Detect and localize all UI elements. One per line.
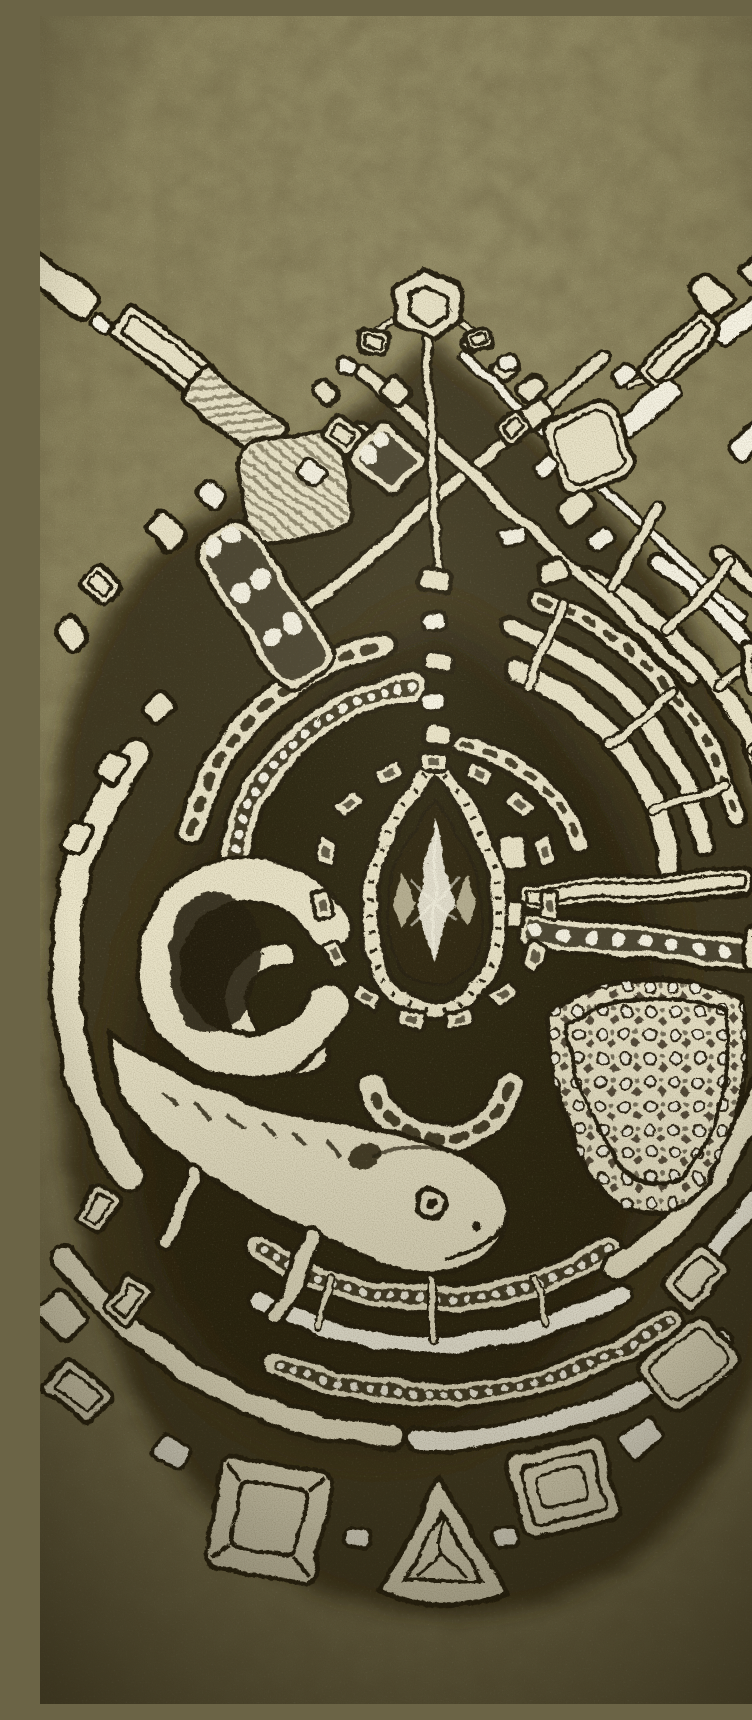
pendant-necklace-sketch [40,16,752,1704]
jewelry-sketch-photo [40,16,752,1704]
vignette [40,16,752,1704]
